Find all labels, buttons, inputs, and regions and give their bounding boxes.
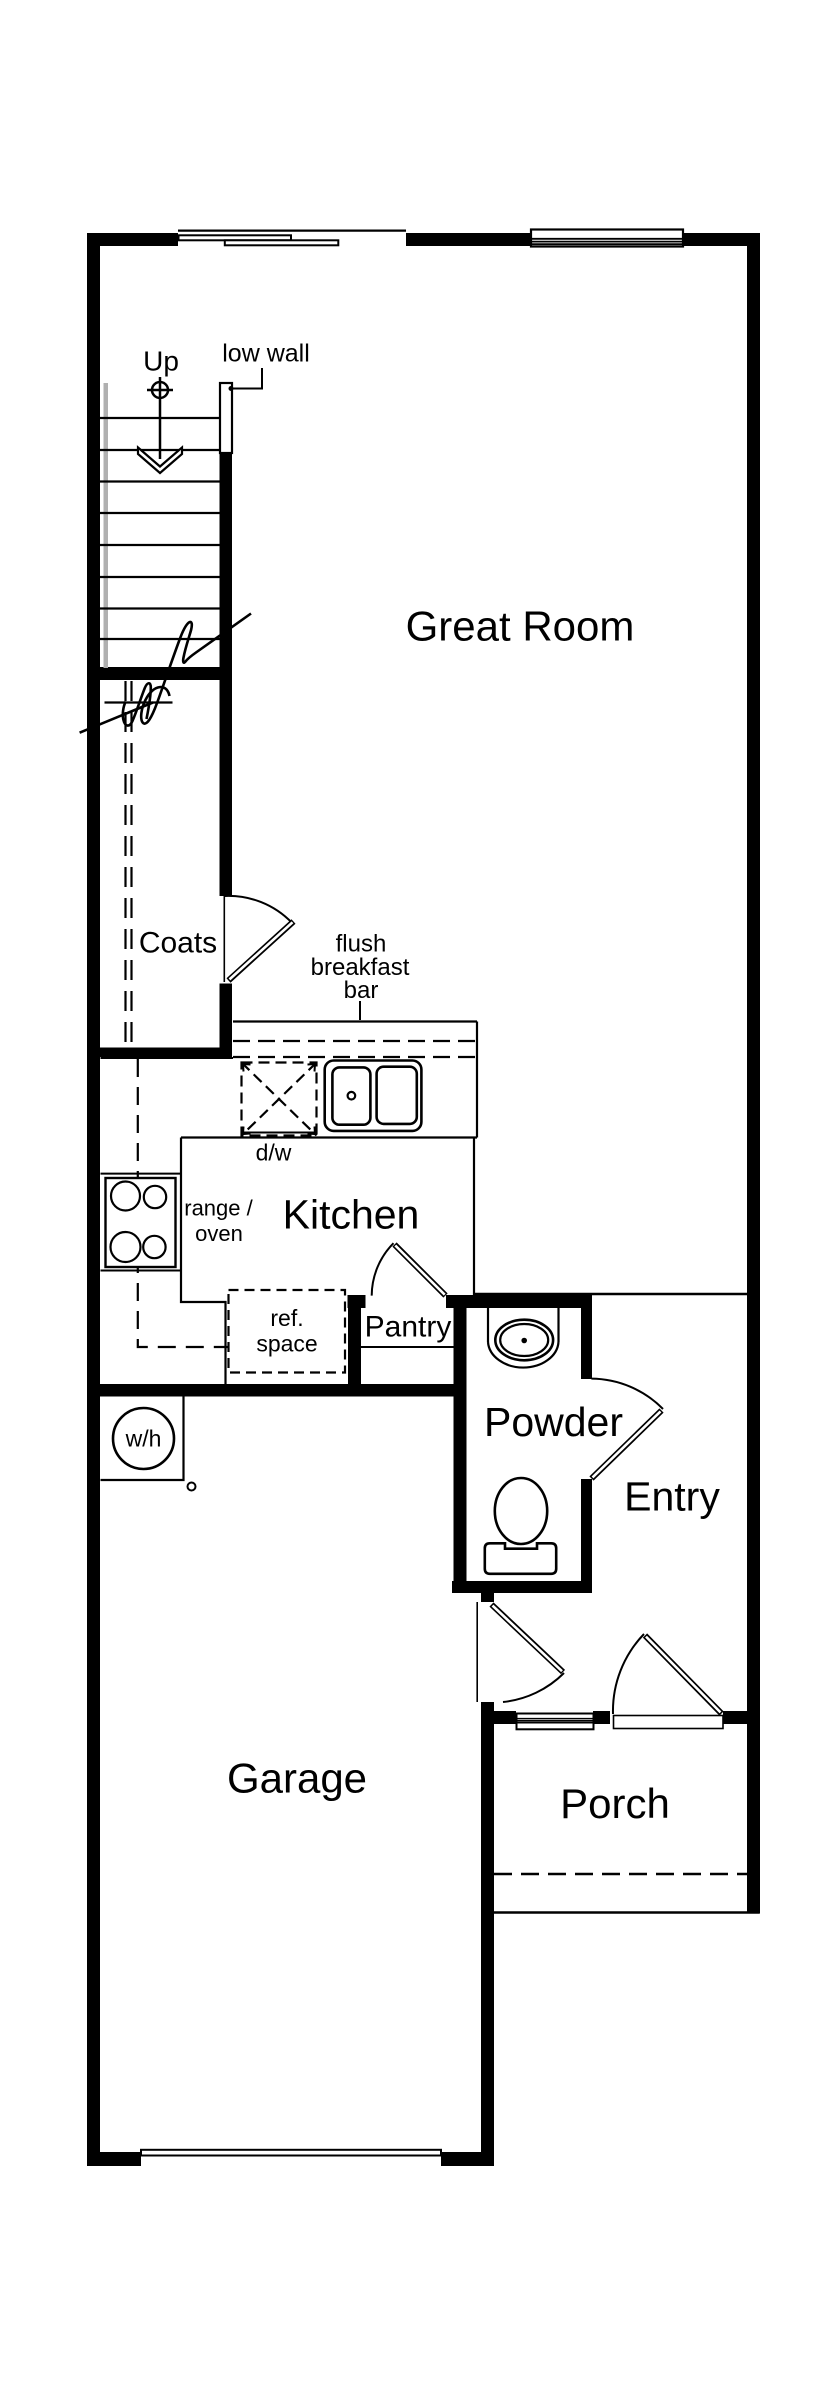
svg-text:Pantry: Pantry <box>365 1311 452 1344</box>
svg-text:Kitchen: Kitchen <box>283 1192 420 1238</box>
svg-text:Porch: Porch <box>560 1780 670 1827</box>
svg-text:d/w: d/w <box>256 1140 292 1166</box>
svg-text:Coats: Coats <box>139 927 217 960</box>
svg-text:Entry: Entry <box>624 1474 720 1520</box>
svg-text:Garage: Garage <box>227 1755 367 1802</box>
svg-text:oven: oven <box>195 1221 243 1246</box>
svg-text:low wall: low wall <box>222 340 310 368</box>
svg-text:Powder: Powder <box>484 1399 623 1445</box>
svg-text:Great Room: Great Room <box>406 603 635 650</box>
svg-text:range /: range / <box>184 1196 253 1221</box>
svg-text:w/h: w/h <box>125 1426 162 1452</box>
svg-text:ref.: ref. <box>270 1305 303 1331</box>
svg-text:space: space <box>256 1331 317 1357</box>
svg-text:Up: Up <box>143 346 179 377</box>
svg-text:bar: bar <box>344 977 379 1004</box>
